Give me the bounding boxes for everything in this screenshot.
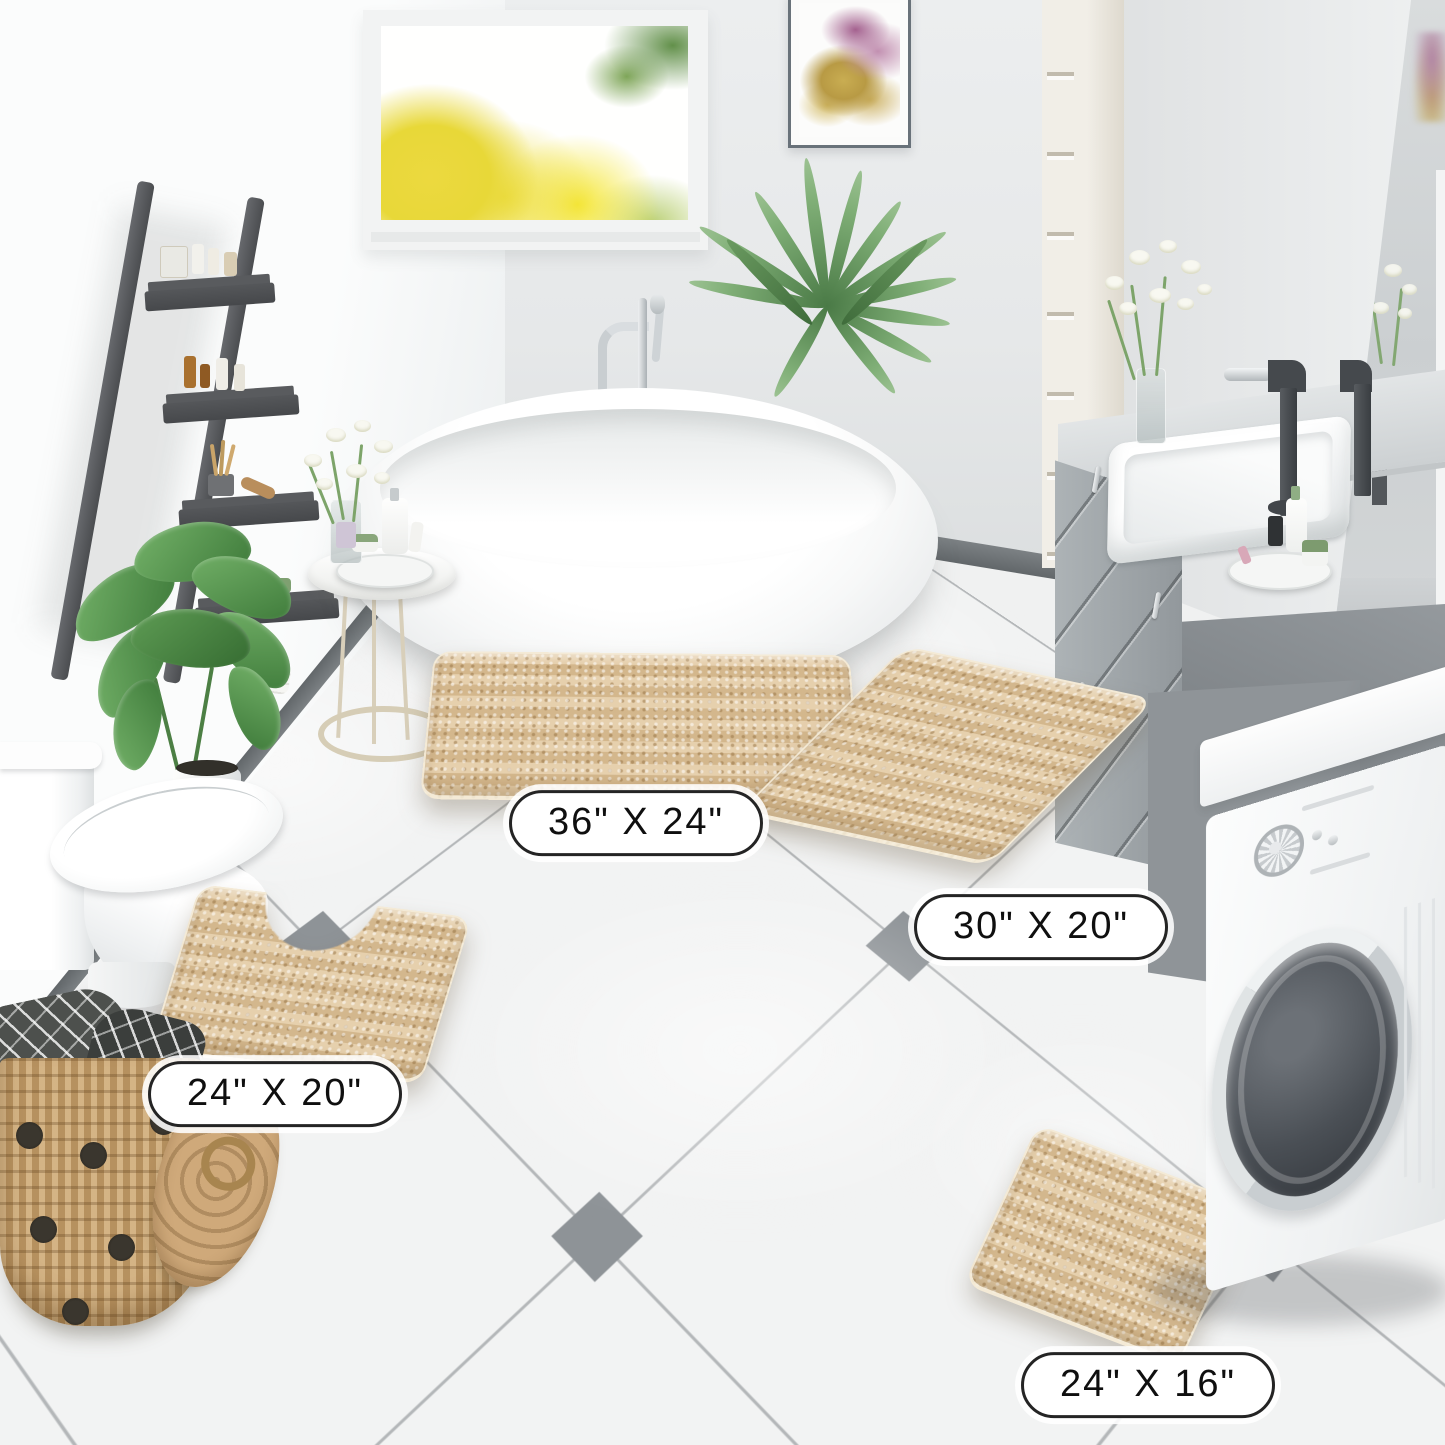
pump-bottle: [216, 358, 228, 390]
brush-cup: [208, 474, 234, 496]
glass-jar: [160, 246, 188, 278]
amber-bottle: [200, 364, 210, 388]
mirror-art-reflection: [1412, 32, 1445, 122]
window-sill: [371, 232, 700, 242]
size-label-24x16: 24" X 16": [1021, 1352, 1275, 1418]
lid-handle: [195, 1130, 262, 1197]
washing-machine: [1206, 743, 1445, 1293]
size-label-36x24: 36" X 24": [509, 790, 763, 856]
lavender-box: [336, 522, 356, 548]
bottle: [208, 248, 219, 275]
washer-dial: [1254, 818, 1304, 883]
green-lid-jar: [1302, 540, 1328, 552]
bathroom-product-scene: 36" X 24" 30" X 20" 24" X 20" 24" X 16": [0, 0, 1445, 1445]
window: [363, 10, 708, 250]
amber-bottle: [184, 356, 196, 388]
washer-shadow: [1150, 1255, 1445, 1325]
pump-top: [1291, 486, 1300, 500]
dark-cosmetic-bottle: [1268, 516, 1283, 546]
brush: [224, 444, 236, 476]
monstera-plant: [75, 525, 295, 820]
washer-door: [1212, 901, 1412, 1238]
bottle: [224, 252, 237, 276]
pump-bottle: [382, 498, 408, 554]
size-label-24x20: 24" X 20": [148, 1061, 402, 1127]
washer-button: [1312, 829, 1322, 842]
bottle: [192, 244, 204, 274]
window-view-autumn-trees: [381, 26, 688, 220]
framed-watercolor-art: [788, 0, 911, 148]
pump-top: [390, 488, 399, 501]
washer-button: [1328, 834, 1338, 847]
pump-bottle: [234, 364, 245, 391]
bath-rug-30x20: [905, 646, 1157, 838]
contour-bath-rug-24x20: [200, 884, 470, 1050]
size-label-30x20: 30" X 20": [914, 894, 1168, 960]
gladiolus-flowers: [1085, 232, 1235, 382]
